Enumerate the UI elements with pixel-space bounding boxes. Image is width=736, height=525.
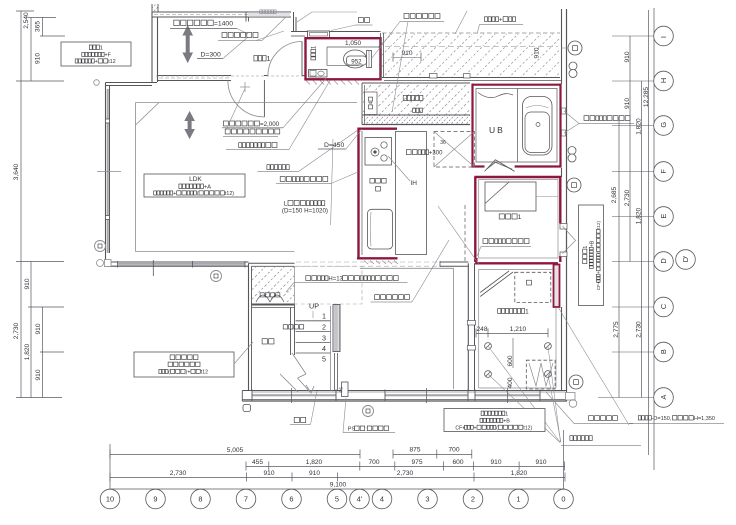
svg-text:G: G — [659, 122, 668, 128]
svg-text:2,685: 2,685 — [611, 186, 618, 203]
svg-text:IH: IH — [410, 180, 417, 187]
svg-text:D': D' — [681, 255, 690, 262]
svg-text:2: 2 — [322, 322, 326, 331]
svg-text:910: 910 — [402, 50, 413, 57]
svg-text:0: 0 — [561, 495, 565, 504]
svg-text:4: 4 — [380, 495, 384, 504]
svg-text:2,730: 2,730 — [624, 189, 631, 206]
svg-text:t12): t12) — [596, 221, 601, 229]
svg-text:+B: +B — [503, 419, 510, 425]
svg-text:+: + — [474, 425, 477, 431]
svg-text:+F: +F — [105, 53, 112, 59]
svg-text:=2,000: =2,000 — [260, 121, 280, 128]
svg-text:1,820: 1,820 — [24, 343, 31, 360]
svg-text:9: 9 — [153, 495, 157, 504]
svg-text:7: 7 — [244, 495, 248, 504]
svg-text:1,050: 1,050 — [345, 40, 361, 47]
svg-text:D=450: D=450 — [324, 142, 344, 149]
svg-text:F: F — [659, 169, 668, 174]
svg-text:3: 3 — [425, 495, 429, 504]
svg-text:2,540: 2,540 — [23, 12, 30, 29]
svg-text:875: 875 — [410, 447, 421, 454]
svg-text:3: 3 — [322, 334, 326, 343]
svg-text:)+: )+ — [186, 370, 191, 376]
svg-text:2: 2 — [471, 495, 475, 504]
svg-text:12,285: 12,285 — [643, 87, 650, 108]
svg-text:LDK: LDK — [189, 176, 202, 183]
svg-text:t12: t12 — [108, 59, 115, 65]
svg-text:-D=150,: -D=150, — [652, 416, 672, 422]
svg-text:600: 600 — [453, 459, 464, 466]
svg-text:+: + — [499, 18, 503, 24]
svg-text:4: 4 — [322, 344, 326, 353]
svg-text:1: 1 — [505, 412, 508, 418]
svg-text:910: 910 — [35, 369, 42, 380]
svg-text:(: ( — [168, 370, 170, 376]
svg-text:975: 975 — [412, 459, 423, 466]
svg-text:D=300: D=300 — [201, 52, 221, 59]
svg-text:PS: PS — [339, 387, 344, 393]
svg-text:(: ( — [197, 191, 199, 197]
svg-text:CF+: CF+ — [596, 281, 601, 290]
svg-text:H=1,350: H=1,350 — [694, 416, 715, 422]
svg-text:9,100: 9,100 — [330, 482, 347, 489]
svg-text:910: 910 — [624, 51, 631, 62]
svg-text:C: C — [659, 303, 668, 309]
svg-text:+A: +A — [204, 185, 211, 191]
svg-text:2,730: 2,730 — [635, 321, 642, 338]
svg-text:455: 455 — [252, 459, 263, 466]
svg-text:5,005: 5,005 — [227, 447, 244, 454]
svg-text:2,730: 2,730 — [397, 470, 414, 477]
svg-text:248: 248 — [477, 326, 488, 333]
svg-text:400: 400 — [507, 377, 514, 388]
svg-text:600: 600 — [507, 355, 514, 366]
svg-text:1: 1 — [267, 56, 271, 63]
svg-text:+: + — [95, 59, 98, 65]
svg-text:UB: UB — [489, 125, 505, 135]
svg-text:910: 910 — [24, 278, 31, 289]
svg-text:1: 1 — [322, 312, 326, 321]
svg-text:910: 910 — [624, 98, 631, 109]
svg-text:D: D — [659, 258, 668, 263]
svg-text:H: H — [659, 78, 668, 83]
svg-text:CF+: CF+ — [455, 425, 465, 431]
svg-text:B: B — [659, 349, 668, 354]
svg-text:t12): t12) — [523, 425, 532, 431]
svg-text:1: 1 — [525, 309, 529, 316]
svg-text:8: 8 — [198, 495, 202, 504]
svg-text:365: 365 — [34, 21, 41, 32]
svg-text:+: + — [173, 191, 176, 197]
svg-text:910: 910 — [35, 323, 42, 334]
svg-text:E: E — [659, 214, 668, 219]
svg-text:910: 910 — [309, 470, 320, 477]
svg-text:910: 910 — [533, 47, 540, 58]
svg-text:4: 4 — [369, 101, 375, 104]
svg-text:2,775: 2,775 — [613, 321, 620, 338]
svg-text:I: I — [659, 36, 668, 38]
svg-text:1: 1 — [583, 246, 589, 249]
svg-text:4': 4' — [357, 495, 363, 504]
svg-text:1,820: 1,820 — [635, 118, 642, 135]
svg-text:700: 700 — [369, 459, 380, 466]
svg-text:910: 910 — [34, 53, 41, 64]
svg-text:910: 910 — [536, 459, 547, 466]
svg-text:952: 952 — [351, 58, 362, 65]
svg-text:700: 700 — [449, 447, 460, 454]
svg-text:UP: UP — [309, 302, 319, 311]
svg-text:1,820: 1,820 — [635, 207, 642, 224]
svg-text:H=13: H=13 — [328, 277, 343, 283]
svg-text:5: 5 — [322, 355, 326, 364]
svg-text:2,730: 2,730 — [13, 322, 20, 339]
svg-text:t12: t12 — [201, 370, 208, 376]
svg-text:(: ( — [496, 425, 498, 431]
svg-text:910: 910 — [491, 459, 502, 466]
svg-text:(D=150 H=1020): (D=150 H=1020) — [282, 208, 328, 215]
svg-text:36: 36 — [440, 140, 446, 146]
svg-text:2,730: 2,730 — [170, 470, 187, 477]
svg-text:6: 6 — [289, 495, 293, 504]
svg-text:+300: +300 — [429, 151, 443, 157]
svg-text:1: 1 — [100, 46, 103, 52]
svg-text:+: + — [596, 271, 601, 274]
svg-text:1: 1 — [518, 214, 522, 221]
svg-text:A: A — [659, 395, 668, 400]
svg-text:5: 5 — [335, 495, 339, 504]
svg-text:1: 1 — [516, 495, 520, 504]
svg-text:t12): t12) — [225, 191, 234, 197]
svg-text:1,820: 1,820 — [306, 459, 323, 466]
svg-text:=1400: =1400 — [214, 21, 233, 28]
svg-text:L: L — [284, 201, 288, 208]
svg-text:910: 910 — [264, 470, 275, 477]
svg-text:10: 10 — [106, 495, 114, 504]
svg-text:+B: +B — [589, 240, 595, 247]
svg-text:1,820: 1,820 — [511, 470, 528, 477]
svg-text:1,210: 1,210 — [510, 326, 527, 333]
svg-text:3,640: 3,640 — [13, 163, 20, 180]
